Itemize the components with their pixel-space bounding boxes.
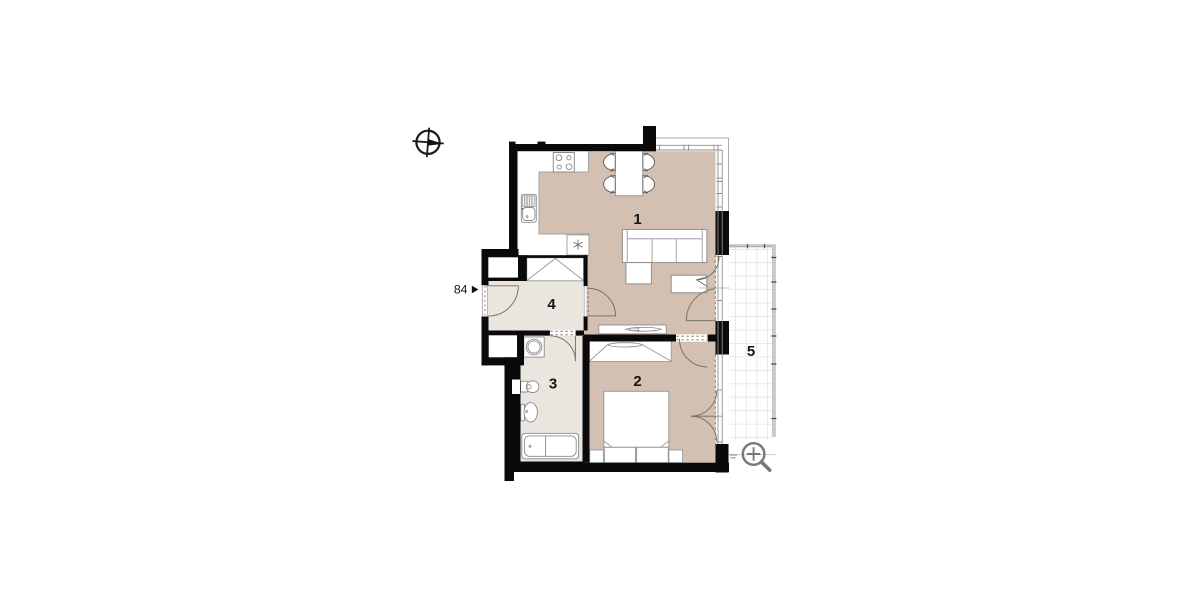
svg-text:2: 2	[633, 373, 641, 390]
svg-text:84: 84	[454, 282, 468, 296]
svg-text:5: 5	[747, 343, 755, 360]
svg-text:4: 4	[547, 296, 556, 313]
svg-text:3: 3	[549, 375, 557, 392]
svg-text:1: 1	[633, 211, 641, 228]
